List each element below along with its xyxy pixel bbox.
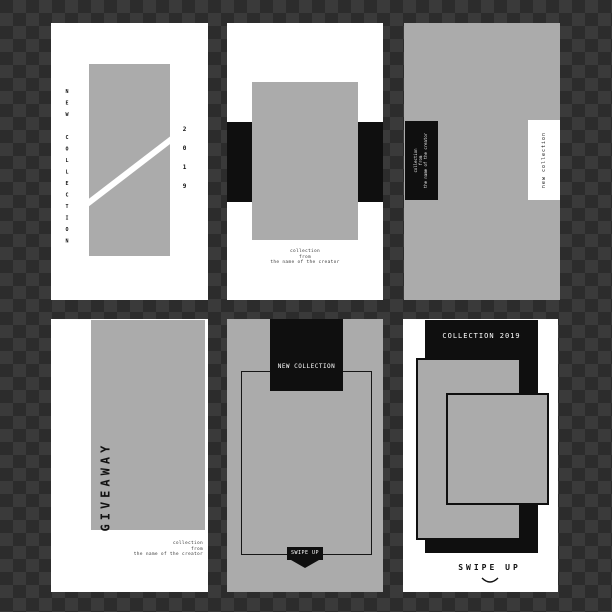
chevron-down-icon: [481, 577, 499, 585]
triangle-down-icon: [291, 560, 319, 568]
caption-line: the name of the creator: [227, 260, 383, 266]
photo-placeholder: [89, 64, 170, 256]
template-card-giveaway: GIVEAWAY collection from the name of the…: [51, 319, 208, 592]
caption: collection from the name of the creator: [405, 121, 438, 200]
vertical-title: NEW COLLECTION: [64, 89, 70, 250]
story-template-grid: NEW COLLECTION 2019 collection from the …: [0, 0, 612, 612]
template-card-new-collection: NEW COLLECTION 2019: [51, 23, 208, 300]
frame-border: [241, 371, 372, 555]
caption-line: the name of the creator: [53, 552, 203, 558]
giveaway-title: GIVEAWAY: [93, 440, 118, 532]
vertical-label-light: new collection: [528, 120, 560, 200]
label-text: new collection: [528, 120, 560, 200]
template-card-side-labels: collection from the name of the creator …: [404, 23, 560, 300]
vertical-label-dark: collection from the name of the creator: [405, 121, 438, 200]
header-badge: NEW COLLECTION: [270, 319, 343, 391]
photo-placeholder: [446, 393, 549, 505]
template-card-framed: NEW COLLECTION SWIPE UP: [227, 319, 383, 592]
caption: collection from the name of the creator: [53, 541, 203, 558]
caption: collection from the name of the creator: [227, 249, 383, 266]
swipe-up-label: SWIPE UP: [403, 563, 558, 572]
caption-line: the name of the creator: [424, 121, 429, 200]
swipe-up-tag: SWIPE UP: [287, 547, 323, 560]
photo-placeholder: [252, 82, 358, 240]
template-card-collection-2019: COLLECTION 2019 SWIPE UP: [403, 319, 558, 592]
template-card-banner: collection from the name of the creator: [227, 23, 383, 300]
diagonal-line: [85, 136, 174, 207]
collection-header: COLLECTION 2019: [425, 332, 538, 340]
year-label: 2019: [181, 126, 188, 202]
